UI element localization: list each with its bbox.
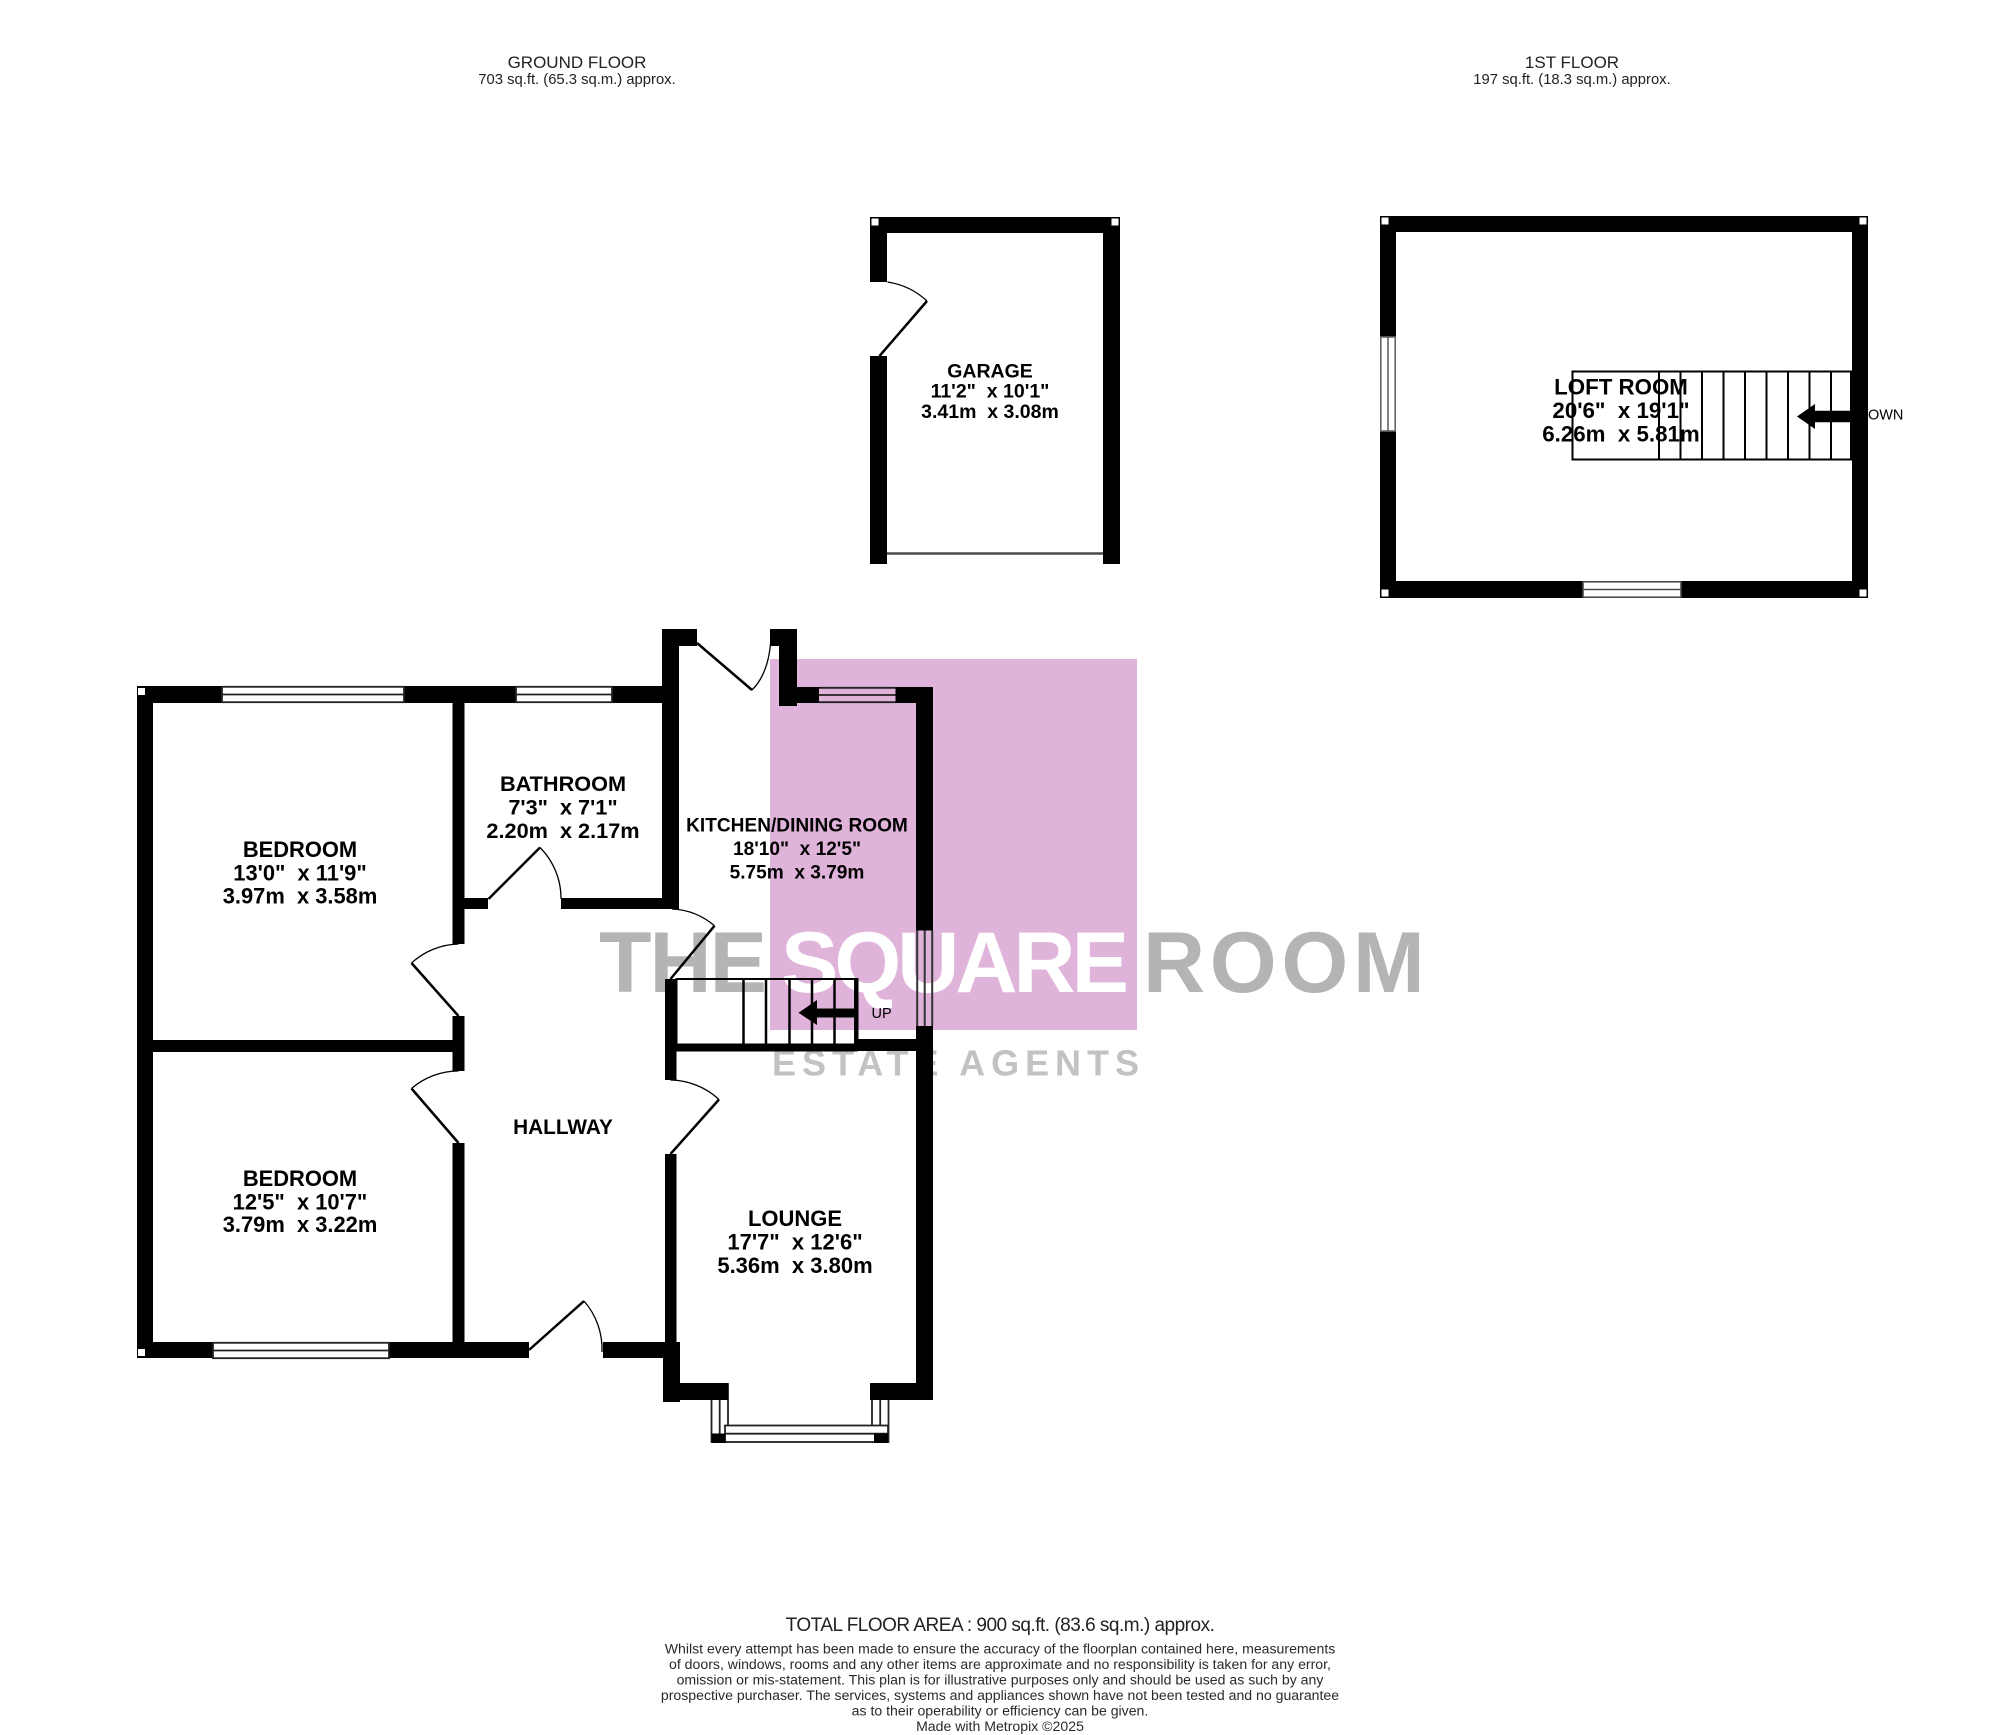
- svg-text:11'2" x 10'1": 11'2" x 10'1": [931, 381, 1050, 403]
- svg-text:6.26m x 5.81m: 6.26m x 5.81m: [1542, 421, 1699, 446]
- svg-text:GROUND FLOOR: GROUND FLOOR: [508, 53, 647, 72]
- svg-text:ROOM: ROOM: [1143, 915, 1429, 1011]
- svg-text:BEDROOM: BEDROOM: [243, 1166, 357, 1191]
- svg-text:5.75m x 3.79m: 5.75m x 3.79m: [730, 862, 865, 883]
- svg-text:703 sq.ft. (65.3 sq.m.) approx: 703 sq.ft. (65.3 sq.m.) approx.: [478, 72, 675, 88]
- svg-text:HALLWAY: HALLWAY: [513, 1116, 613, 1139]
- svg-text:Whilst every attempt has been: Whilst every attempt has been made to en…: [665, 1641, 1336, 1657]
- svg-text:3.41m x 3.08m: 3.41m x 3.08m: [921, 401, 1059, 423]
- svg-text:TOTAL FLOOR AREA : 900 sq.ft.: TOTAL FLOOR AREA : 900 sq.ft. (83.6 sq.m…: [786, 1615, 1215, 1636]
- svg-text:7'3" x 7'1": 7'3" x 7'1": [508, 794, 617, 819]
- svg-text:197 sq.ft. (18.3 sq.m.) approx: 197 sq.ft. (18.3 sq.m.) approx.: [1473, 72, 1670, 88]
- svg-text:LOFT ROOM: LOFT ROOM: [1554, 375, 1688, 400]
- svg-text:3.97m x 3.58m: 3.97m x 3.58m: [223, 884, 378, 909]
- svg-text:SQUARE: SQUARE: [781, 915, 1126, 1011]
- svg-text:THE: THE: [599, 915, 765, 1011]
- svg-text:omission or mis-statement. Thi: omission or mis-statement. This plan is …: [677, 1672, 1325, 1688]
- svg-text:13'0" x 11'9": 13'0" x 11'9": [233, 860, 366, 885]
- svg-text:18'10" x 12'5": 18'10" x 12'5": [733, 839, 861, 860]
- svg-text:LOUNGE: LOUNGE: [748, 1206, 842, 1231]
- svg-text:2.20m x 2.17m: 2.20m x 2.17m: [486, 818, 639, 843]
- svg-text:UP: UP: [872, 1006, 892, 1022]
- svg-text:5.36m x 3.80m: 5.36m x 3.80m: [717, 1253, 872, 1278]
- svg-text:KITCHEN/DINING ROOM: KITCHEN/DINING ROOM: [686, 815, 908, 836]
- svg-text:3.79m x 3.22m: 3.79m x 3.22m: [223, 1212, 378, 1237]
- svg-text:20'6" x 19'1": 20'6" x 19'1": [1552, 398, 1689, 423]
- svg-text:17'7" x 12'6": 17'7" x 12'6": [727, 1229, 862, 1254]
- svg-text:prospective purchaser. The ser: prospective purchaser. The services, sys…: [661, 1687, 1339, 1703]
- svg-text:Made with Metropix ©2025: Made with Metropix ©2025: [916, 1718, 1084, 1734]
- svg-text:BEDROOM: BEDROOM: [243, 837, 357, 862]
- svg-text:as to their operability or eff: as to their operability or efficiency ca…: [852, 1703, 1149, 1719]
- svg-text:BATHROOM: BATHROOM: [500, 771, 626, 796]
- svg-text:GARAGE: GARAGE: [947, 361, 1033, 383]
- svg-text:12'5" x 10'7": 12'5" x 10'7": [233, 1190, 368, 1215]
- svg-text:1ST FLOOR: 1ST FLOOR: [1525, 53, 1619, 72]
- svg-text:of doors, windows, rooms and a: of doors, windows, rooms and any other i…: [669, 1656, 1331, 1672]
